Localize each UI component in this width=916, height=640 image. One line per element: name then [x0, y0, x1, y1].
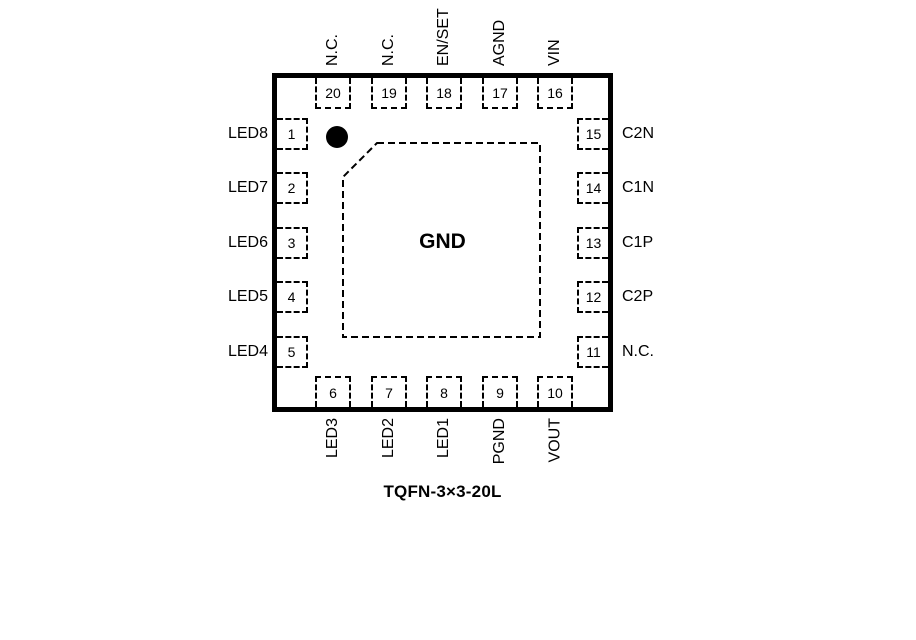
pin-label-led2: LED2 — [380, 418, 398, 458]
pin-number: 20 — [325, 85, 341, 101]
pin-number: 14 — [586, 180, 602, 196]
pin-box-5: 5 — [277, 336, 308, 368]
pin-box-9: 9 — [482, 376, 518, 407]
pin-number: 2 — [288, 180, 296, 196]
pin-box-12: 12 — [577, 281, 608, 313]
pin-number: 16 — [547, 85, 563, 101]
pin-number: 8 — [440, 385, 448, 401]
pin-number: 3 — [288, 235, 296, 251]
pin-box-4: 4 — [277, 281, 308, 313]
pin-number: 18 — [436, 85, 452, 101]
pin-label-led5: LED5 — [158, 286, 268, 308]
pin-box-13: 13 — [577, 227, 608, 259]
pin-label-led3: LED3 — [324, 418, 342, 458]
pin-label-led7: LED7 — [158, 177, 268, 199]
pin-box-7: 7 — [371, 376, 407, 407]
pin-label-c2n: C2N — [622, 123, 732, 145]
pin-label-enset: EN/SET — [435, 8, 453, 66]
pin-box-19: 19 — [371, 78, 407, 109]
pin1-marker-icon — [326, 126, 348, 148]
pin-box-14: 14 — [577, 172, 608, 204]
pin-number: 1 — [288, 126, 296, 142]
pin-box-17: 17 — [482, 78, 518, 109]
pin-box-8: 8 — [426, 376, 462, 407]
pin-box-1: 1 — [277, 118, 308, 150]
pin-number: 15 — [586, 126, 602, 142]
pin-label-c2p: C2P — [622, 286, 732, 308]
pin-box-20: 20 — [315, 78, 351, 109]
pin-number: 12 — [586, 289, 602, 305]
gnd-pad-label: GND — [277, 230, 608, 254]
pin-number: 10 — [547, 385, 563, 401]
pin-box-3: 3 — [277, 227, 308, 259]
pin-number: 6 — [329, 385, 337, 401]
pin-box-2: 2 — [277, 172, 308, 204]
pin-label-vout: VOUT — [546, 418, 564, 462]
package-caption: TQFN-3×3-20L — [272, 482, 613, 502]
pin-number: 13 — [586, 235, 602, 251]
pin-label-nc20: N.C. — [324, 34, 342, 66]
pin-label-led8: LED8 — [158, 123, 268, 145]
pin-label-led1: LED1 — [435, 418, 453, 458]
pin-number: 11 — [586, 344, 601, 360]
pin-box-11: 11 — [577, 336, 608, 368]
chip-package-outline: GND 20 19 18 17 16 1 2 3 4 5 15 14 13 12… — [272, 73, 613, 412]
pinout-diagram: GND 20 19 18 17 16 1 2 3 4 5 15 14 13 12… — [0, 0, 916, 640]
pin-number: 5 — [288, 344, 296, 360]
pin-label-nc11: N.C. — [622, 341, 732, 363]
pin-number: 7 — [385, 385, 393, 401]
pin-number: 17 — [492, 85, 508, 101]
pin-label-led6: LED6 — [158, 232, 268, 254]
pin-label-c1p: C1P — [622, 232, 732, 254]
pin-label-c1n: C1N — [622, 177, 732, 199]
pin-number: 4 — [288, 289, 296, 305]
pin-box-10: 10 — [537, 376, 573, 407]
pin-number: 9 — [496, 385, 504, 401]
pin-box-18: 18 — [426, 78, 462, 109]
pin-label-nc19: N.C. — [380, 34, 398, 66]
pin-label-vin: VIN — [546, 39, 564, 66]
pin-box-6: 6 — [315, 376, 351, 407]
pin-label-led4: LED4 — [158, 341, 268, 363]
pin-box-16: 16 — [537, 78, 573, 109]
pin-label-pgnd: PGND — [491, 418, 509, 464]
pin-box-15: 15 — [577, 118, 608, 150]
pin-number: 19 — [381, 85, 397, 101]
pin-label-agnd: AGND — [491, 20, 509, 66]
